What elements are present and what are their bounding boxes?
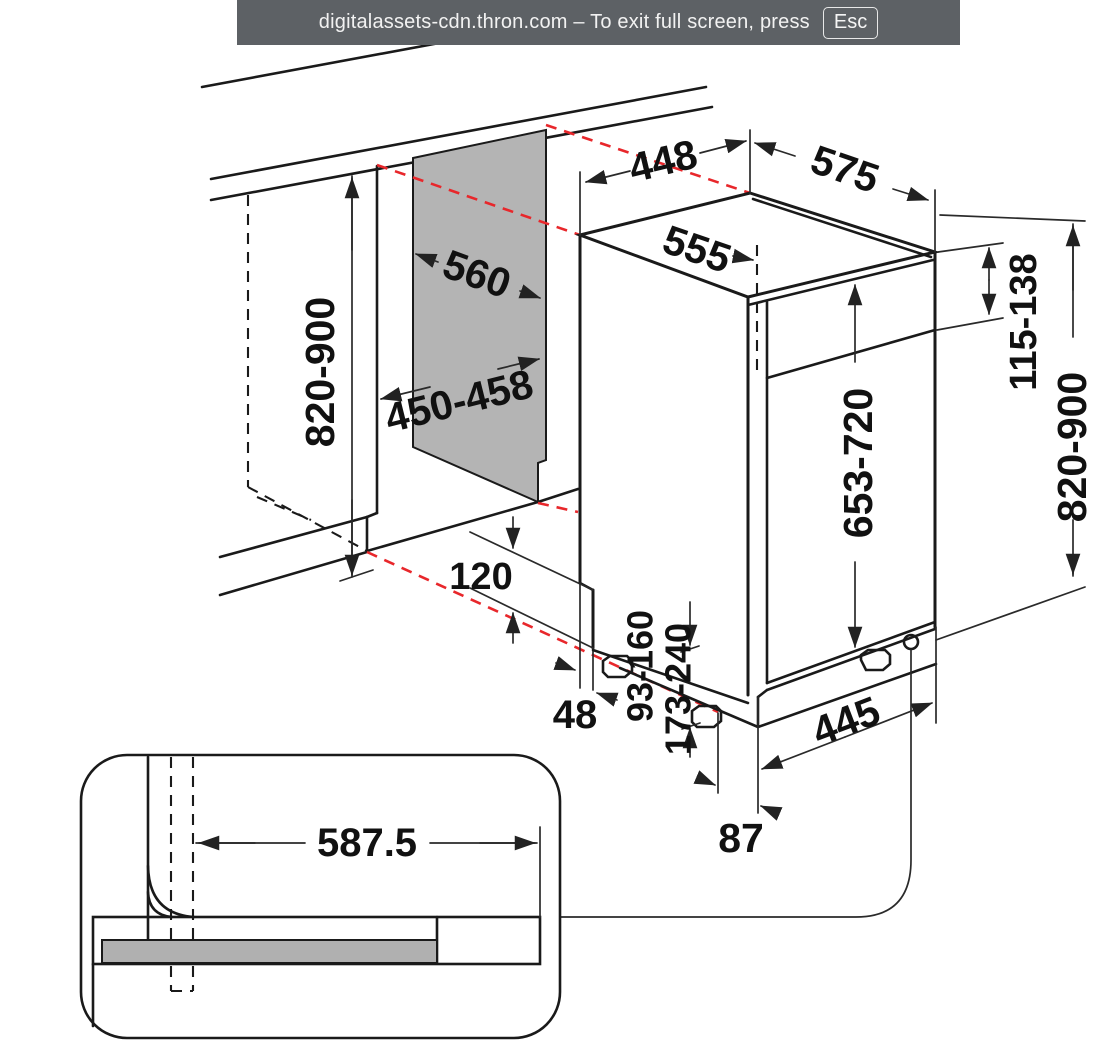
niche-side-panel — [413, 130, 546, 502]
dim-hose-offset: 587.5 — [317, 821, 417, 865]
dim-niche-height: 820-900 — [297, 297, 343, 447]
dim-top-width: 448 — [624, 131, 701, 192]
dim-bottom-offset: 87 — [718, 815, 764, 861]
fullscreen-toast-message: digitalassets-cdn.thron.com – To exit fu… — [319, 11, 810, 34]
detail-bubble — [81, 755, 560, 1038]
dim-top-depth-total: 575 — [805, 136, 885, 202]
dim-control-band-height: 115-138 — [1003, 253, 1045, 390]
fullscreen-toast: digitalassets-cdn.thron.com – To exit fu… — [237, 0, 960, 45]
dim-rear-gap: 48 — [553, 693, 598, 737]
plinth-bar — [102, 940, 437, 963]
dim-overall-height: 820-900 — [1049, 372, 1095, 522]
dim-plinth-recess: 120 — [449, 556, 512, 598]
niche-floor-edge — [538, 489, 578, 502]
dim-clearance-min: 93-160 — [620, 610, 661, 722]
dim-door-height: 653-720 — [835, 388, 881, 538]
screenshot-root: 448 575 555 560 450-458 820-900 115-138 … — [0, 0, 1114, 1045]
installation-diagram: 448 575 555 560 450-458 820-900 115-138 … — [0, 0, 1114, 1045]
esc-keycap: Esc — [823, 7, 878, 39]
dim-clearance-max: 173-240 — [658, 623, 699, 755]
